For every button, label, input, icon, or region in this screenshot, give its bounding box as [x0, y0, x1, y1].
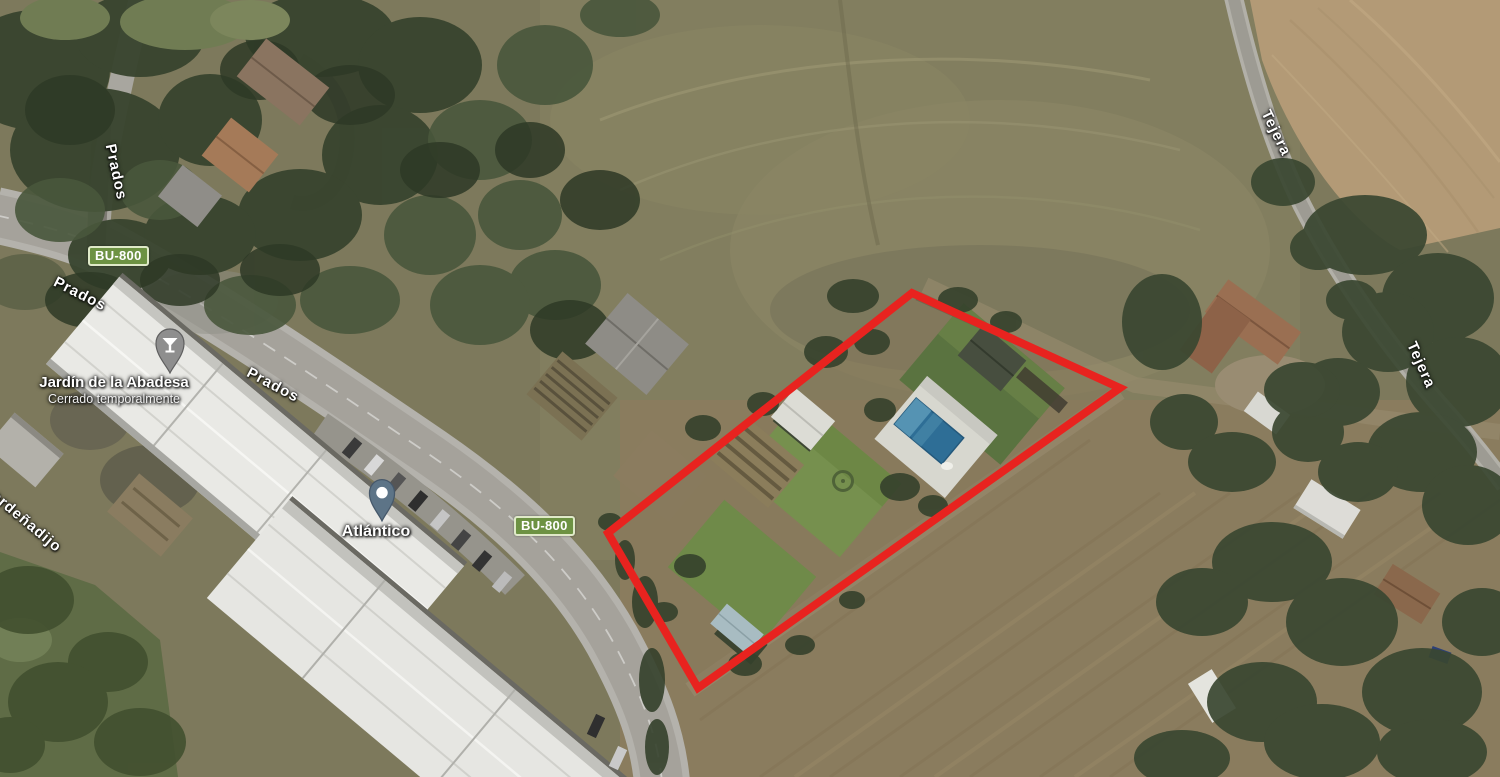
poi-status-closed: Cerrado temporalmente [8, 392, 220, 406]
cocktail-bar-pin-icon[interactable] [150, 326, 190, 376]
satellite-map[interactable]: Prados Prados Prados Tejera Tejera Carde… [0, 0, 1500, 777]
route-badge-bu800-2: BU-800 [514, 516, 575, 536]
poi-jardin-de-la-abadesa[interactable]: Jardín de la Abadesa Cerrado temporalmen… [8, 374, 220, 406]
poi-atlantico[interactable]: Atlántico [296, 523, 456, 541]
poi-name[interactable]: Atlántico [296, 523, 456, 541]
place-pin-icon[interactable] [363, 477, 401, 523]
satellite-imagery [0, 0, 1500, 777]
route-badge-bu800-1: BU-800 [88, 246, 149, 266]
poi-name[interactable]: Jardín de la Abadesa [8, 374, 220, 391]
